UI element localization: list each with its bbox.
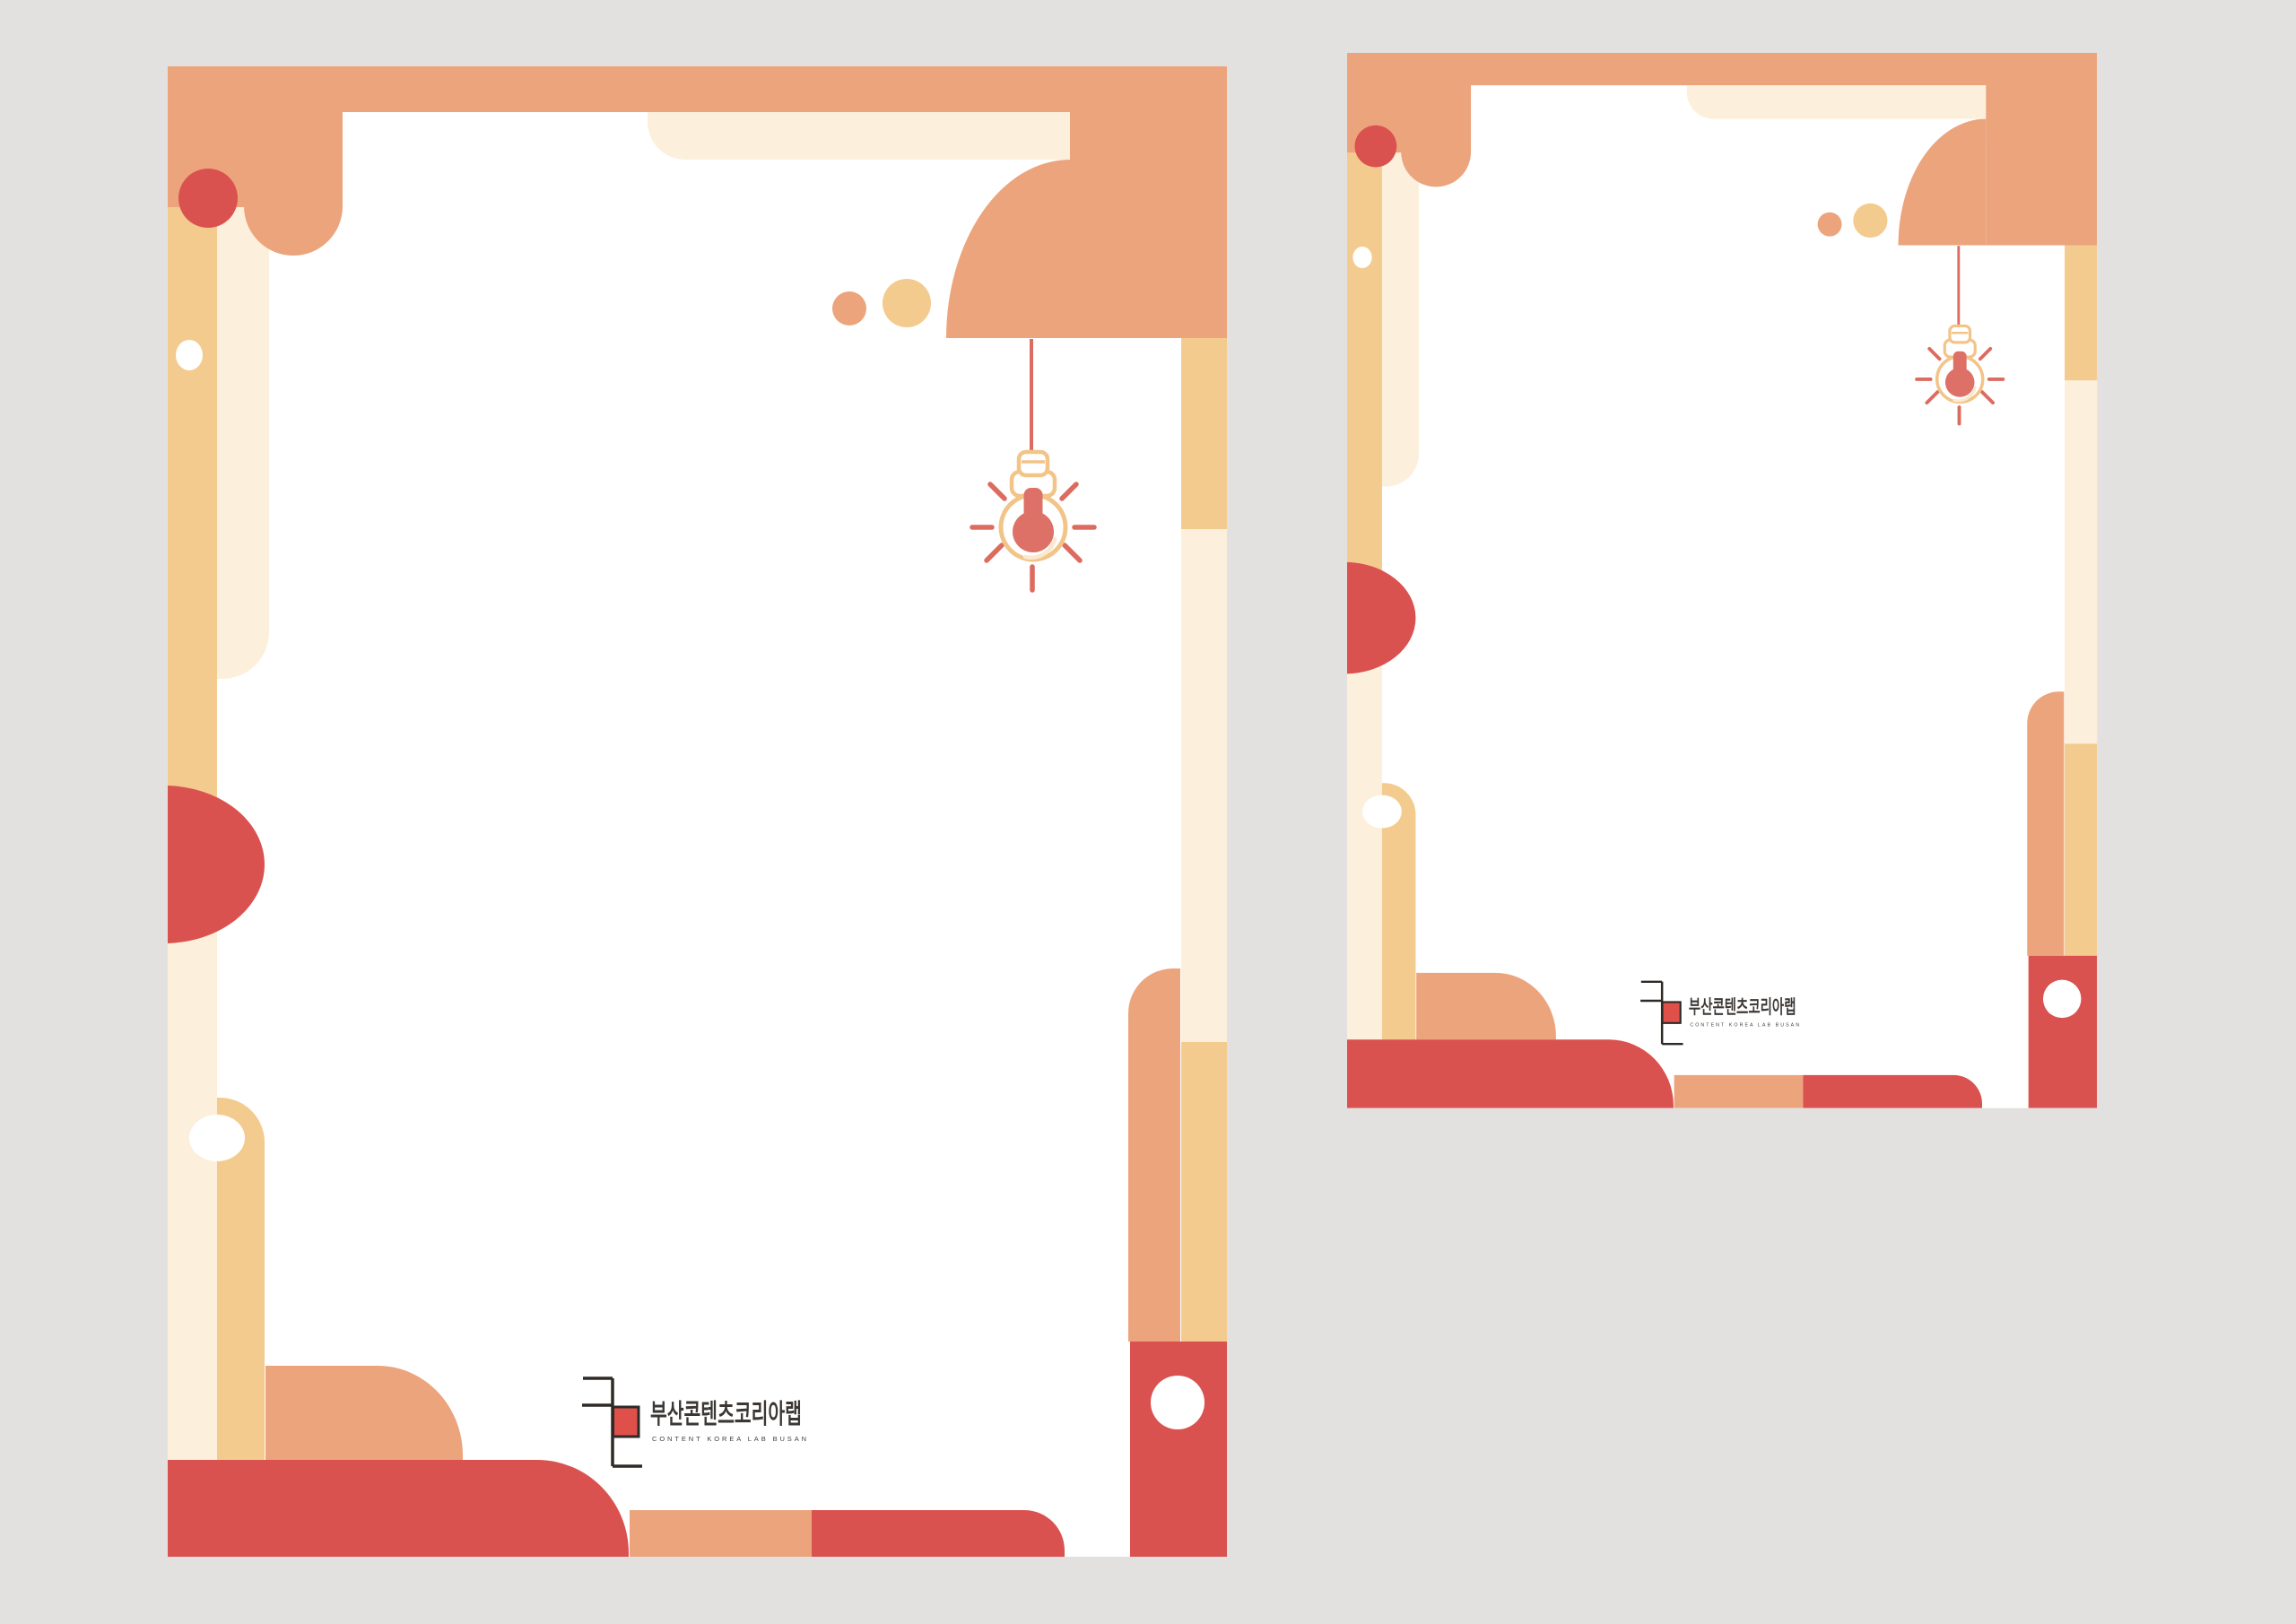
lamp-cord (1030, 339, 1033, 454)
bottom-right-white-circle (1151, 1376, 1205, 1429)
left-inner-cream-bar (1382, 152, 1419, 487)
right-edge-tan-bar-upper (2065, 246, 2097, 381)
right-edge-tan-bar-lower (2065, 743, 2097, 955)
bulb-cap (1019, 452, 1048, 475)
top-right-salmon-blob (1986, 53, 2097, 246)
lightbulb-icon (1887, 319, 2033, 478)
top-left-corner-drip (244, 66, 343, 256)
left-white-dot-upper (1352, 247, 1371, 268)
right-salmon-rounded-bar (2027, 691, 2064, 956)
right-edge-tan-bar-upper (1181, 338, 1227, 529)
tan-dot (1853, 204, 1887, 238)
top-right-blob-flare (1899, 119, 1987, 246)
poster-canvas: 부산콘텐츠코리아랩 CONTENT KOREA LAB BUSAN (168, 66, 1227, 1557)
logo-red-square (613, 1407, 639, 1437)
top-cream-strip (648, 112, 1070, 160)
bottom-salmon-hill (265, 1366, 463, 1460)
top-left-corner-drip (1401, 53, 1471, 187)
left-inner-cream-bar (217, 205, 269, 679)
right-edge-cream-bar (2065, 380, 2097, 743)
salmon-dot (1818, 213, 1842, 237)
left-edge-tan-bar (168, 205, 217, 856)
lightbulb-icon (930, 443, 1136, 667)
top-left-red-circle (178, 169, 238, 228)
right-edge-tan-bar-lower (1181, 1042, 1227, 1342)
poster-artboard-large: 부산콘텐츠코리아랩 CONTENT KOREA LAB BUSAN (168, 66, 1227, 1557)
ckl-logo-mark (1636, 977, 1693, 1049)
bottom-salmon-strip (1674, 1075, 1804, 1108)
logo-english-subtitle: CONTENT KOREA LAB BUSAN (1690, 1022, 1855, 1027)
lamp-cord (1957, 246, 1960, 327)
logo-red-square (1663, 1002, 1681, 1022)
top-left-red-circle (1354, 126, 1396, 168)
left-white-dot-lower (1362, 795, 1402, 829)
bulb-filament-bulb (1945, 368, 1975, 397)
top-cream-strip (1687, 85, 1986, 119)
bottom-red-band (1347, 1039, 1674, 1107)
bottom-red-strip (1803, 1075, 1982, 1108)
bulb-cap (1950, 326, 1970, 342)
bottom-red-band (168, 1460, 629, 1557)
ckl-logo-mark (576, 1371, 657, 1474)
left-red-half-circle (1347, 562, 1415, 674)
bottom-red-strip (812, 1510, 1065, 1557)
bottom-salmon-strip (630, 1510, 812, 1557)
tan-dot (883, 279, 931, 327)
salmon-dot (832, 291, 866, 326)
poster-canvas: 부산콘텐츠코리아랩 CONTENT KOREA LAB BUSAN (1347, 53, 2097, 1108)
right-edge-cream-bar (1181, 529, 1227, 1042)
left-red-half-circle (168, 786, 265, 943)
top-right-salmon-blob (1070, 66, 1227, 338)
bottom-right-white-circle (2043, 980, 2081, 1018)
logo-korean-title: 부산콘텐츠코리아랩 (1689, 998, 1810, 1017)
bulb-filament-bulb (1013, 511, 1054, 552)
logo-english-subtitle: CONTENT KOREA LAB BUSAN (652, 1436, 885, 1443)
bottom-right-red-block (1130, 1342, 1227, 1557)
logo-korean-title: 부산콘텐츠코리아랩 (650, 1402, 821, 1429)
left-white-dot-upper (176, 340, 203, 370)
left-edge-tan-bar (1347, 152, 1382, 612)
poster-artboard-small: 부산콘텐츠코리아랩 CONTENT KOREA LAB BUSAN (1347, 53, 2097, 1108)
top-right-blob-flare (946, 160, 1070, 338)
bottom-right-red-block (2029, 956, 2097, 1108)
right-salmon-rounded-bar (1128, 968, 1180, 1342)
bottom-salmon-hill (1416, 973, 1556, 1039)
left-white-dot-lower (189, 1115, 245, 1161)
